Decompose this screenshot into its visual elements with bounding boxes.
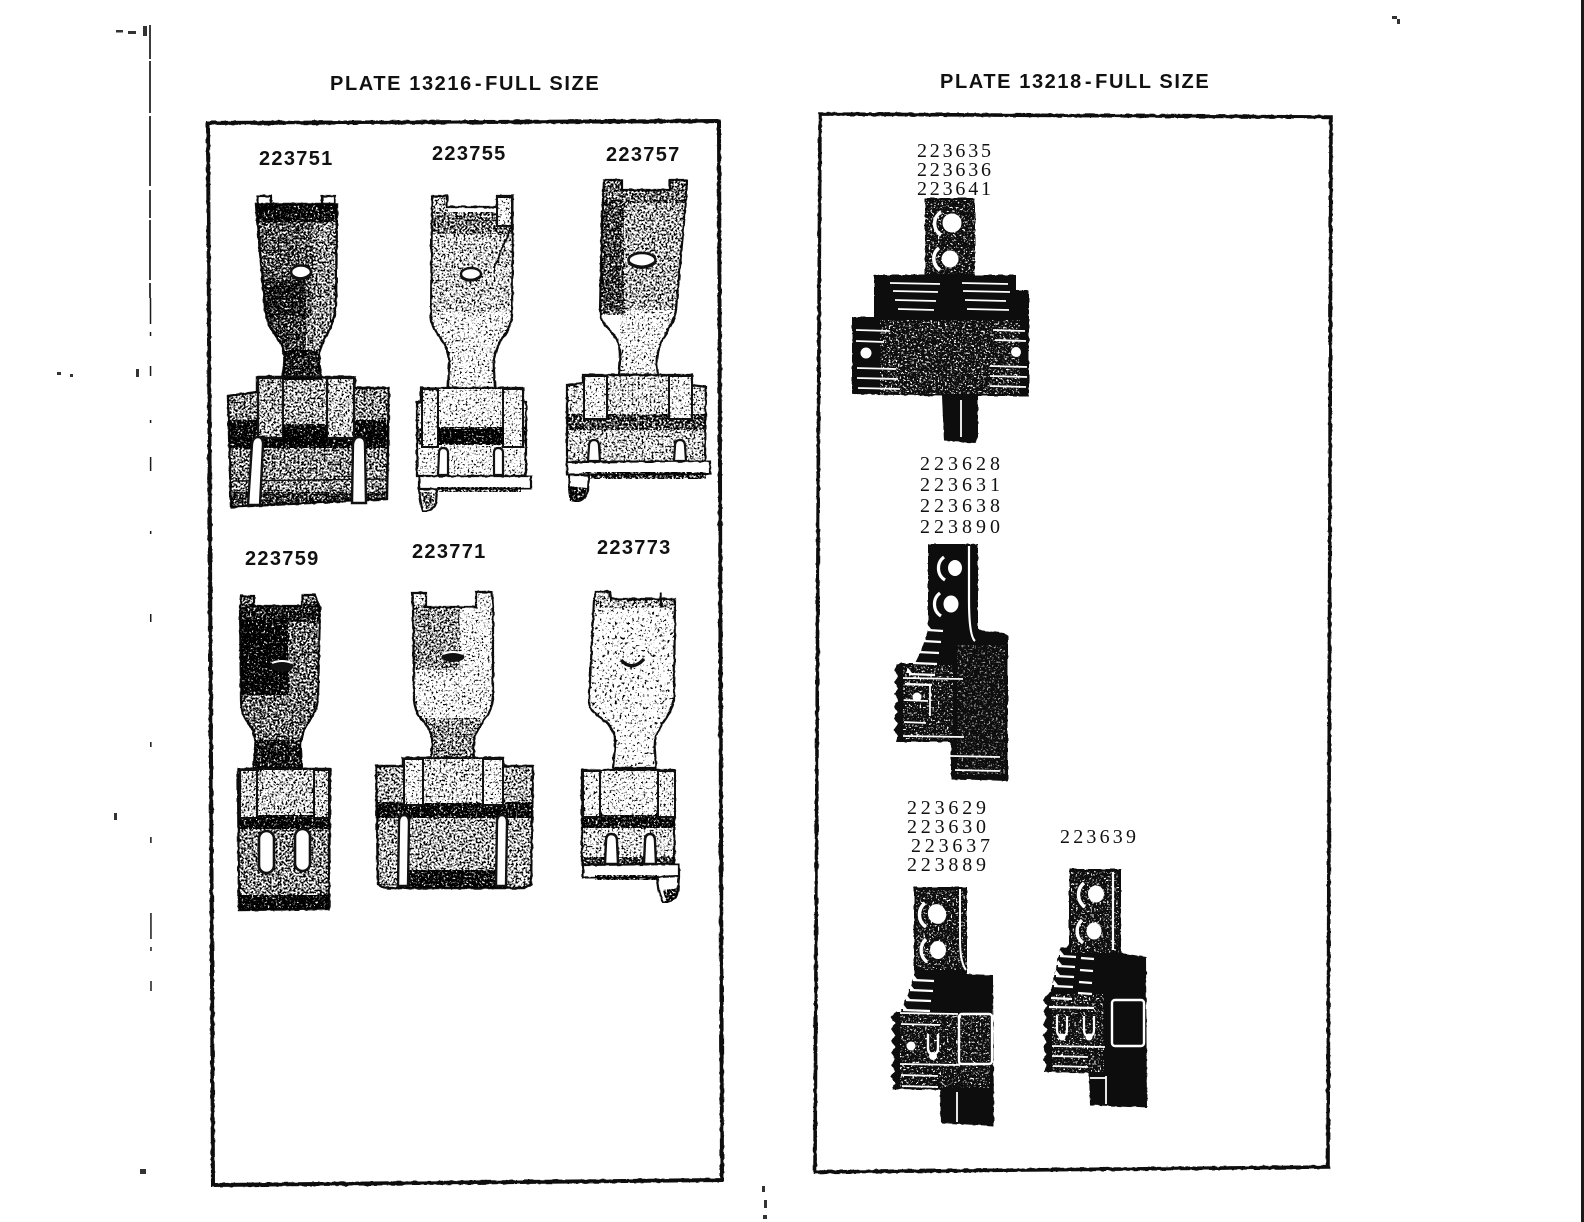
svg-text:223757: 223757 (606, 144, 681, 166)
svg-text:223889: 223889 (907, 854, 990, 876)
svg-text:223890: 223890 (920, 516, 1004, 538)
svg-text:223631: 223631 (920, 474, 1004, 496)
svg-text:PLATE 13218-FULL SIZE: PLATE 13218-FULL SIZE (940, 71, 1210, 93)
svg-text:223639: 223639 (1060, 826, 1139, 848)
svg-text:223751: 223751 (259, 148, 334, 170)
svg-text:223641: 223641 (917, 178, 994, 200)
svg-text:223771: 223771 (412, 541, 487, 563)
svg-text:PLATE 13216-FULL SIZE: PLATE 13216-FULL SIZE (330, 73, 600, 95)
svg-text:223759: 223759 (245, 548, 320, 570)
svg-text:223755: 223755 (432, 143, 507, 165)
svg-text:223773: 223773 (597, 537, 672, 559)
svg-text:223638: 223638 (920, 495, 1004, 517)
svg-text:223628: 223628 (920, 453, 1004, 475)
